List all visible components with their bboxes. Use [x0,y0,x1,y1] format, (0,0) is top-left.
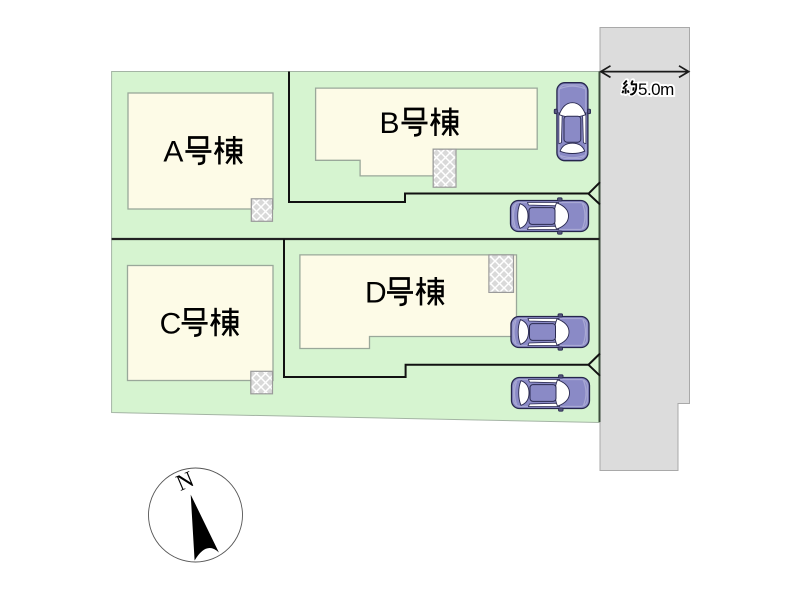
svg-text:5.0m: 5.0m [638,80,674,99]
svg-text:D: D [365,277,387,310]
svg-text:B: B [380,107,400,140]
svg-text:A: A [163,136,183,169]
svg-text:C: C [160,307,182,340]
